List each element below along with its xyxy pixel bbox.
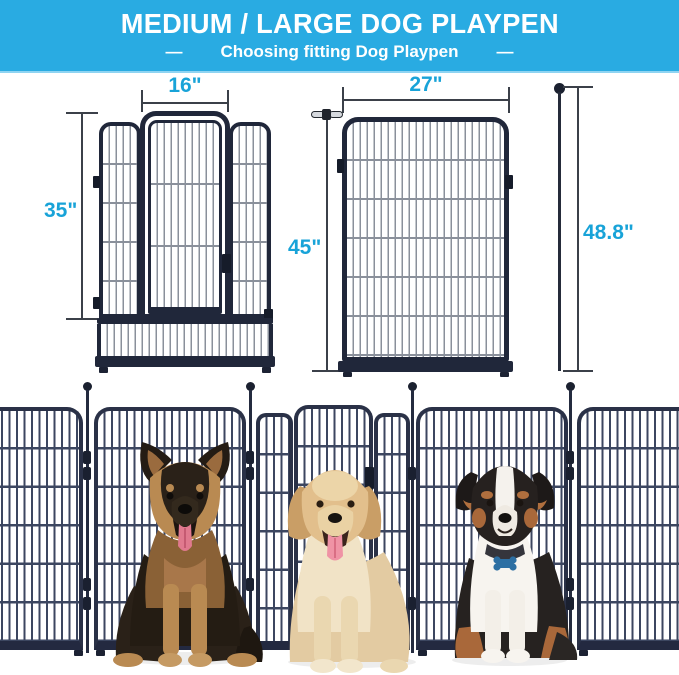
door-outer-frame — [140, 111, 230, 319]
dim-27-line — [342, 99, 510, 101]
dim-35-line — [81, 112, 83, 320]
dim-16-label: 16" — [141, 74, 229, 98]
stake-handle-right — [329, 111, 343, 118]
header-banner: MEDIUM / LARGE DOG PLAYPEN — Choosing fi… — [0, 0, 679, 73]
australian-shepherd-head — [456, 466, 555, 546]
door-panel-right-section — [229, 122, 271, 318]
panel-foot — [343, 372, 352, 377]
rod-knuckle — [83, 451, 91, 464]
fence-panel — [0, 407, 83, 650]
golden-retriever-body — [290, 532, 410, 673]
dim-35-bottom-tick — [66, 318, 98, 320]
panel-foot — [500, 372, 509, 377]
rod-knuckle — [83, 467, 91, 480]
rod-knuckle — [83, 597, 91, 610]
hinge-tab-right — [505, 175, 513, 189]
connecting-rod — [86, 390, 89, 653]
dim-27-label: 27" — [342, 73, 510, 97]
panel-foot — [262, 367, 271, 373]
subtitle-row: — Choosing fitting Dog Playpen — — [166, 42, 514, 62]
door-panel-bottom-rail — [95, 356, 275, 367]
dim-488-bottom-tick — [563, 370, 593, 372]
product-infographic: MEDIUM / LARGE DOG PLAYPEN — Choosing fi… — [0, 0, 679, 675]
door-leaf — [148, 120, 222, 314]
dim-45-label: 45" — [288, 236, 322, 260]
hinge-tab-lower — [93, 297, 100, 309]
fence-panel — [577, 407, 679, 650]
hinge-tab-upper — [93, 176, 100, 188]
german-shepherd-body — [113, 530, 263, 667]
large-panel — [342, 117, 509, 362]
rod-knuckle — [83, 578, 91, 591]
dim-16-line — [141, 102, 229, 104]
page-subtitle: Choosing fitting Dog Playpen — [221, 42, 459, 62]
stake-handle-knob — [322, 109, 331, 120]
dim-45-line — [326, 112, 328, 372]
australian-shepherd-photo — [441, 450, 583, 670]
hinge-tab-left — [337, 159, 344, 173]
german-shepherd-photo — [100, 436, 270, 668]
panel-foot — [99, 367, 108, 373]
dash-left: — — [166, 42, 183, 62]
door-latch — [222, 254, 231, 273]
dim-488-label: 48.8" — [583, 221, 634, 245]
dim-35-label: 35" — [44, 199, 77, 223]
golden-retriever-photo — [272, 448, 430, 674]
panel-foot — [74, 650, 83, 656]
door-panel-bottom-section — [97, 324, 273, 357]
page-title: MEDIUM / LARGE DOG PLAYPEN — [120, 9, 558, 38]
german-shepherd-head — [140, 442, 230, 551]
door-panel-left-section — [99, 122, 141, 318]
dash-right: — — [496, 42, 513, 62]
large-panel-bottom-rail — [338, 361, 513, 372]
connecting-rod — [558, 92, 561, 371]
golden-retriever-head — [288, 470, 381, 561]
dim-488-line — [577, 86, 579, 372]
